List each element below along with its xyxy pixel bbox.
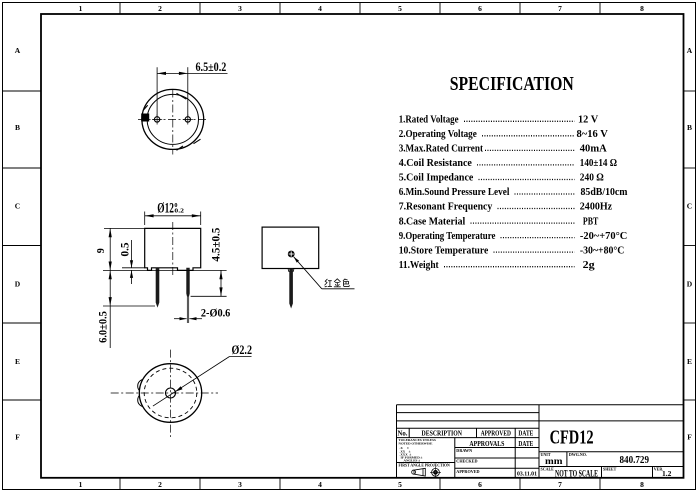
- svg-text:DWG.NO.: DWG.NO.: [569, 452, 587, 457]
- svg-text:2: 2: [158, 480, 162, 489]
- svg-text:C: C: [15, 202, 20, 211]
- svg-text:840.729: 840.729: [620, 455, 650, 466]
- svg-text:8.Case Material: 8.Case Material: [399, 216, 466, 227]
- svg-text:8~16 V: 8~16 V: [577, 129, 609, 140]
- svg-text:FIRST ANGLE PROJECTION: FIRST ANGLE PROJECTION: [399, 464, 450, 468]
- svg-text:APPROVED: APPROVED: [481, 430, 511, 438]
- svg-text:-30~+80°C: -30~+80°C: [580, 245, 625, 256]
- svg-text:Ø12: Ø12: [157, 200, 174, 216]
- svg-text:8: 8: [640, 480, 644, 489]
- svg-text:5: 5: [398, 480, 402, 489]
- svg-text:7.Resonant Frequency: 7.Resonant Frequency: [399, 202, 493, 213]
- svg-text:1: 1: [79, 480, 83, 489]
- svg-text:3: 3: [238, 4, 242, 13]
- svg-text:APPROVED: APPROVED: [456, 469, 479, 474]
- svg-text:A: A: [15, 46, 21, 55]
- svg-text:03.11.01: 03.11.01: [517, 472, 537, 478]
- svg-text:1.2: 1.2: [662, 469, 672, 478]
- svg-text:9.Operating Temperature: 9.Operating Temperature: [399, 231, 496, 242]
- svg-text:6.5±0.2: 6.5±0.2: [196, 60, 227, 74]
- svg-text:11.Weight: 11.Weight: [399, 260, 439, 271]
- svg-text:NOT TO SCALE: NOT TO SCALE: [555, 468, 598, 478]
- svg-text:APPROVALS: APPROVALS: [469, 439, 504, 448]
- svg-text:SPECIFICATION: SPECIFICATION: [450, 73, 574, 95]
- svg-text:D: D: [687, 280, 693, 289]
- svg-text:F: F: [15, 433, 20, 442]
- svg-text:5: 5: [398, 4, 402, 13]
- svg-text:4: 4: [318, 4, 322, 13]
- svg-text:7: 7: [558, 4, 562, 13]
- svg-text:CHECKED: CHECKED: [456, 459, 477, 464]
- svg-text:D: D: [15, 280, 21, 289]
- svg-text:B: B: [687, 123, 692, 132]
- svg-text:2g: 2g: [583, 260, 596, 271]
- svg-text:No.: No.: [398, 430, 408, 438]
- svg-text:Ø2.2: Ø2.2: [232, 342, 253, 357]
- svg-text:5.Coil Impedance: 5.Coil Impedance: [399, 173, 474, 184]
- svg-text:B: B: [15, 123, 20, 132]
- svg-text:6.Min.Sound Pressure Level: 6.Min.Sound Pressure Level: [399, 187, 510, 198]
- svg-text:6.0±0.5: 6.0±0.5: [96, 311, 109, 343]
- svg-text:A: A: [687, 46, 693, 55]
- svg-text:F: F: [687, 433, 692, 442]
- svg-text:PBT: PBT: [583, 216, 598, 227]
- svg-text:240 Ω: 240 Ω: [580, 173, 604, 184]
- svg-text:9: 9: [96, 248, 107, 253]
- svg-text:-20~+70°C: -20~+70°C: [580, 231, 627, 242]
- svg-text:4.Coil Resistance: 4.Coil Resistance: [399, 158, 473, 169]
- svg-text:1: 1: [79, 4, 83, 13]
- svg-text:2400Hz: 2400Hz: [580, 202, 613, 213]
- svg-text:0.5: 0.5: [119, 242, 131, 256]
- svg-text:SCALE: SCALE: [541, 467, 555, 472]
- svg-text:6: 6: [478, 480, 482, 489]
- svg-text:SHEET: SHEET: [603, 467, 617, 472]
- svg-text:1.Rated Voltage: 1.Rated Voltage: [399, 115, 459, 126]
- svg-text:C: C: [687, 202, 692, 211]
- svg-text:10.Store Temperature: 10.Store Temperature: [399, 245, 489, 256]
- svg-text:4: 4: [318, 480, 322, 489]
- svg-text:DATE: DATE: [518, 439, 533, 448]
- svg-text:E: E: [687, 357, 692, 366]
- svg-text:NOTED OTHERWISE: NOTED OTHERWISE: [399, 442, 434, 446]
- svg-text:2-Ø0.6: 2-Ø0.6: [201, 307, 231, 319]
- svg-text:DESCRIPTION: DESCRIPTION: [422, 430, 463, 438]
- svg-text:DRAWN: DRAWN: [456, 448, 472, 453]
- svg-text:85dB/10cm: 85dB/10cm: [581, 187, 628, 198]
- svg-text:4.5±0.5: 4.5±0.5: [208, 228, 222, 262]
- svg-text:8: 8: [640, 4, 644, 13]
- svg-text:140±14 Ω: 140±14 Ω: [580, 158, 617, 169]
- svg-text:2.Operating Voltage: 2.Operating Voltage: [399, 129, 477, 140]
- svg-text:3: 3: [238, 480, 242, 489]
- svg-text:mm: mm: [545, 457, 563, 467]
- svg-text:DATE: DATE: [518, 430, 533, 438]
- svg-text:6: 6: [478, 4, 482, 13]
- svg-text:3.Max.Rated Current: 3.Max.Rated Current: [399, 144, 484, 155]
- svg-text:2: 2: [158, 4, 162, 13]
- svg-text:CFD12: CFD12: [550, 427, 594, 449]
- svg-text:40mA: 40mA: [580, 144, 607, 155]
- svg-text:7: 7: [558, 480, 562, 489]
- svg-text:ANGLES ±: ANGLES ±: [404, 458, 421, 462]
- svg-text:12 V: 12 V: [578, 115, 599, 126]
- svg-text:E: E: [15, 357, 20, 366]
- svg-text:0.2: 0.2: [174, 207, 184, 214]
